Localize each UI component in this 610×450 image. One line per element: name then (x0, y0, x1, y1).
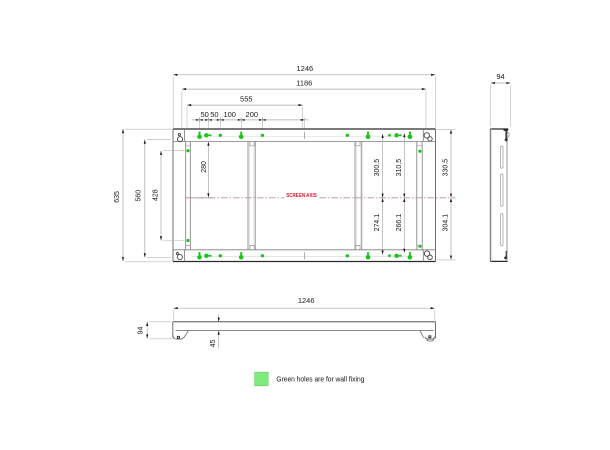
svg-text:428: 428 (152, 189, 159, 201)
svg-text:94: 94 (138, 327, 145, 335)
svg-text:50: 50 (210, 110, 218, 119)
svg-text:100: 100 (223, 110, 236, 119)
svg-text:330.5: 330.5 (443, 159, 450, 177)
svg-text:1186: 1186 (296, 79, 312, 88)
svg-text:SCREEN AXIS: SCREEN AXIS (286, 193, 317, 199)
svg-text:200: 200 (246, 110, 259, 119)
svg-text:555: 555 (240, 95, 253, 104)
svg-text:300.5: 300.5 (374, 159, 381, 177)
svg-text:560: 560 (136, 190, 143, 202)
svg-text:304.1: 304.1 (443, 214, 450, 232)
svg-text:1246: 1246 (298, 296, 315, 305)
svg-text:Green holes are for wall fixin: Green holes are for wall fixing (276, 375, 364, 384)
svg-text:635: 635 (114, 191, 121, 203)
svg-text:274.1: 274.1 (374, 214, 381, 232)
svg-text:280: 280 (201, 161, 208, 173)
svg-text:94: 94 (496, 72, 504, 81)
svg-text:310.5: 310.5 (396, 159, 403, 177)
svg-text:45: 45 (210, 340, 217, 348)
svg-text:1246: 1246 (297, 64, 314, 73)
svg-text:266.1: 266.1 (396, 214, 403, 232)
svg-text:50: 50 (201, 110, 209, 119)
